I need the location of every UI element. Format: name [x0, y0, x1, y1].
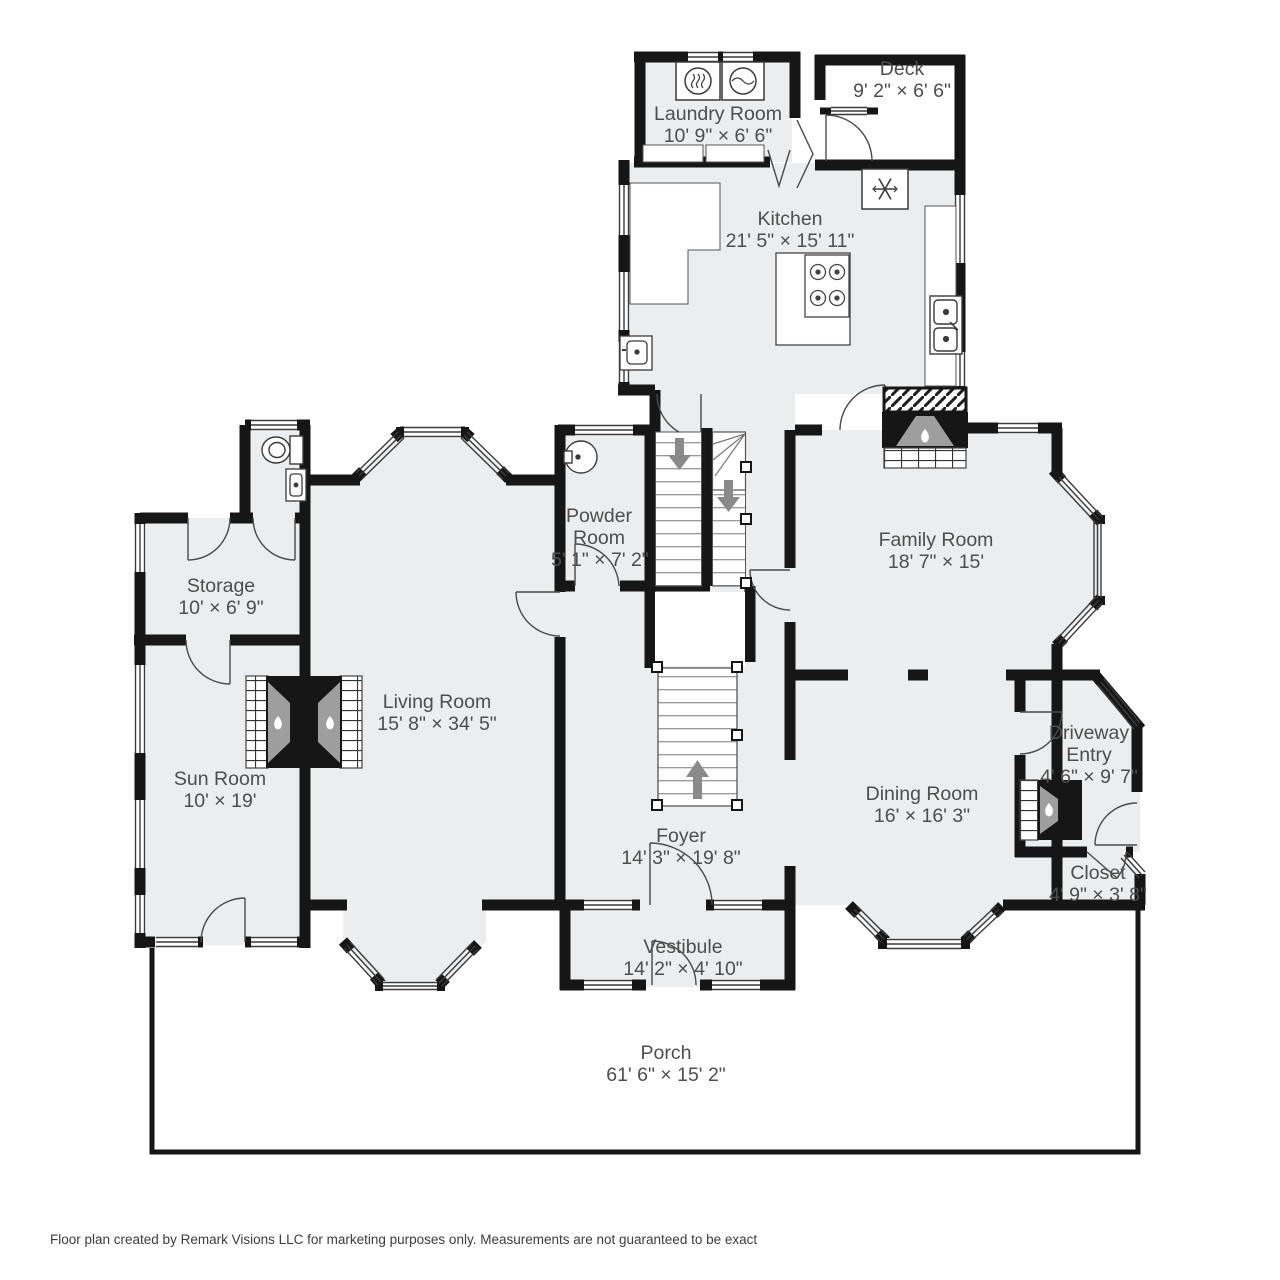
label-storage: Storage 10' × 6' 9": [178, 575, 263, 619]
floor-plan-canvas: [0, 0, 1280, 1280]
room-name: Deck: [853, 58, 951, 80]
label-vestibule: Vestibule 14' 2" × 4' 10": [623, 936, 742, 980]
window-laundry-2: [723, 51, 753, 63]
laundry-counters: [643, 145, 764, 162]
room-name: Powder Room: [551, 505, 647, 549]
window-kitchen-left-1: [618, 185, 630, 235]
dryer-icon: [676, 62, 720, 100]
toilet-icon: [262, 436, 303, 464]
floor-plan-page: Deck 9' 2" × 6' 6" Laundry Room 10' 9" ×…: [0, 0, 1280, 1280]
room-dims: 18' 7" × 15': [879, 551, 994, 573]
window-sun-left-3: [134, 895, 146, 933]
room-dims: 10' × 6' 9": [178, 597, 263, 619]
window-vestibule-bottom-2: [712, 979, 760, 991]
window-family-top: [998, 422, 1038, 434]
room-dims: 15' 8" × 34' 5": [377, 713, 496, 735]
window-toilet-room: [251, 419, 297, 431]
hall-floor: [650, 388, 795, 435]
room-name: Family Room: [879, 529, 994, 551]
label-sun: Sun Room 10' × 19': [174, 768, 266, 812]
bathroom-sink-icon: [286, 469, 306, 501]
room-name: Driveway Entry: [1039, 722, 1139, 766]
room-dims: 9' 2" × 6' 6": [853, 80, 951, 102]
label-family: Family Room 18' 7" × 15': [879, 529, 994, 573]
window-vestibule-top-1: [584, 899, 632, 911]
room-name: Porch: [606, 1042, 725, 1064]
stove-icon: [776, 253, 850, 345]
window-dining-bay-bottom: [887, 938, 961, 950]
label-foyer: Foyer 14' 3" × 19' 8": [621, 825, 740, 869]
refrigerator-icon: [862, 169, 908, 209]
label-powder: Powder Room 5' 1" × 7' 2": [551, 505, 647, 571]
footer-disclaimer: Floor plan created by Remark Visions LLC…: [50, 1232, 757, 1247]
room-name: Sun Room: [174, 768, 266, 790]
window-powder: [575, 424, 633, 436]
fireplace-family: [882, 388, 968, 468]
room-dims: 4' 6" × 9' 7": [1039, 766, 1139, 788]
room-dims: 5' 1" × 7' 2": [551, 549, 647, 571]
window-sun-bottom-1: [156, 936, 198, 948]
room-dims: 10' × 19': [174, 790, 266, 812]
washer-icon: [722, 62, 764, 100]
label-driveway: Driveway Entry 4' 6" × 9' 7": [1039, 722, 1139, 788]
room-dims: 21' 5" × 15' 11": [726, 230, 855, 252]
label-living: Living Room 15' 8" × 34' 5": [377, 691, 496, 735]
label-deck: Deck 9' 2" × 6' 6": [853, 58, 951, 102]
window-living-bottom: [383, 981, 437, 992]
room-name: Vestibule: [623, 936, 742, 958]
window-sun-left-2: [134, 800, 146, 868]
room-name: Laundry Room: [654, 103, 782, 125]
room-name: Kitchen: [726, 208, 855, 230]
window-sun-left-1: [134, 665, 146, 753]
label-porch: Porch 61' 6" × 15' 2": [606, 1042, 725, 1086]
window-storage-left: [134, 524, 146, 572]
label-closet: Closet 4' 9" × 3' 8": [1049, 862, 1147, 906]
fireplace-dining: [1020, 780, 1082, 840]
stairs: [652, 432, 751, 810]
window-kitchen-left-2: [618, 272, 630, 330]
stair-landing: [655, 592, 745, 666]
kitchen-sink-icon: [930, 296, 962, 354]
room-dims: 61' 6" × 15' 2": [606, 1064, 725, 1086]
room-dims: 16' × 16' 3": [866, 805, 979, 827]
label-dining: Dining Room 16' × 16' 3": [866, 783, 979, 827]
room-name: Foyer: [621, 825, 740, 847]
window-sun-bottom-2: [251, 936, 297, 948]
window-living-top: [404, 426, 461, 438]
window-laundry-1: [688, 51, 718, 63]
room-dims: 4' 9" × 3' 8": [1049, 884, 1147, 906]
window-vestibule-top-2: [714, 899, 762, 911]
room-name: Storage: [178, 575, 263, 597]
window-deck-inner: [831, 106, 867, 116]
label-kitchen: Kitchen 21' 5" × 15' 11": [726, 208, 855, 252]
room-name: Closet: [1049, 862, 1147, 884]
room-dims: 14' 2" × 4' 10": [623, 958, 742, 980]
window-vestibule-bottom-1: [584, 979, 632, 991]
room-name: Living Room: [377, 691, 496, 713]
room-dims: 14' 3" × 19' 8": [621, 847, 740, 869]
door-deck: [826, 115, 872, 161]
label-laundry: Laundry Room 10' 9" × 6' 6": [654, 103, 782, 147]
fireplace-living-sun: [246, 676, 362, 768]
prep-sink-icon: [620, 336, 652, 370]
powder-sink-icon: [564, 441, 597, 473]
room-name: Dining Room: [866, 783, 979, 805]
room-dims: 10' 9" × 6' 6": [654, 125, 782, 147]
